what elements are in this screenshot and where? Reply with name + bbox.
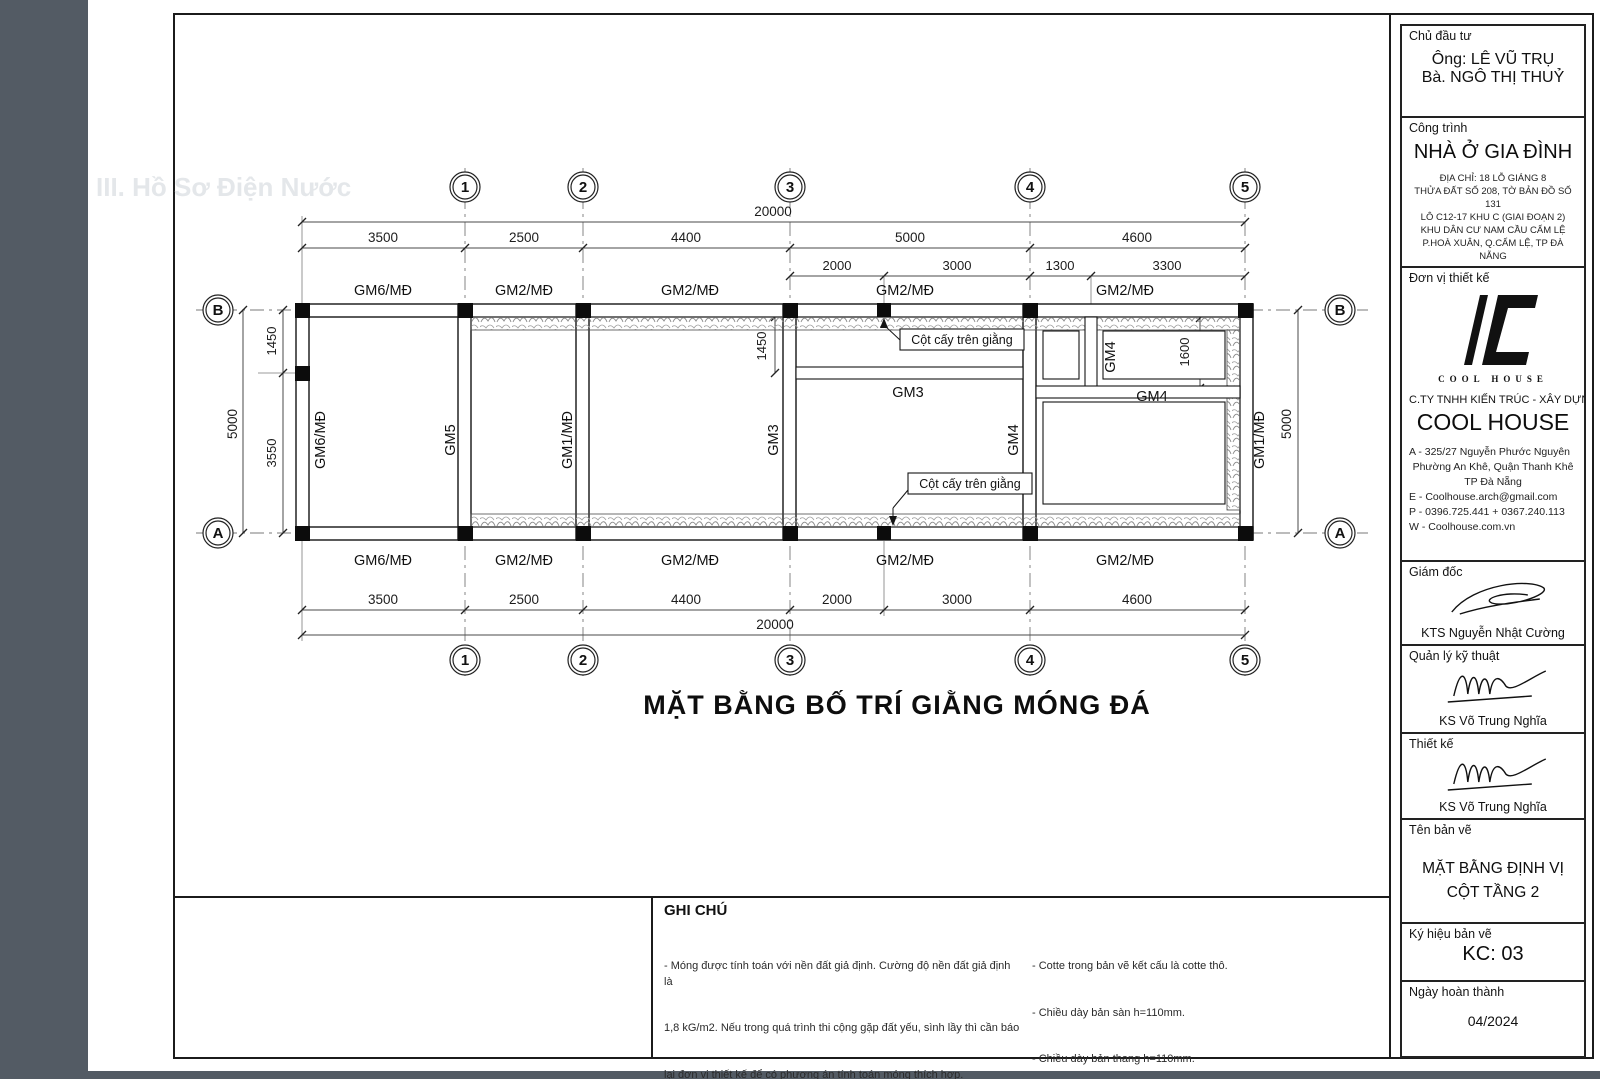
tech-manager-label: Quản lý kỹ thuật (1409, 649, 1577, 663)
dim-label: 5000 (895, 230, 925, 245)
dim-label: 4600 (1122, 230, 1152, 245)
titleblock-divider (1389, 13, 1391, 1059)
grid-bubble-label: 2 (579, 652, 587, 669)
company-line: W - Coolhouse.com.vn (1409, 520, 1577, 535)
notes-title: GHI CHÚ (664, 902, 727, 919)
beam-label: GM4 (1103, 341, 1119, 372)
beam-label: GM2/MĐ (876, 553, 934, 569)
grid-bubble-label: 5 (1241, 179, 1249, 196)
plan-title: MẶT BẰNG BỐ TRÍ GIẰNG MÓNG ĐÁ (643, 688, 1150, 720)
company-line: P - 0396.725.441 + 0367.240.113 (1409, 505, 1577, 520)
callout-label: Cột cấy trên giằng (919, 476, 1020, 491)
dim-label: 2000 (823, 258, 852, 273)
tech-manager-section: Quản lý kỹ thuật KS Võ Trung Nghĩa (1402, 646, 1584, 734)
dim-label: 3500 (368, 230, 398, 245)
beam-label: GM5 (443, 424, 459, 455)
tech-manager-signature (1438, 662, 1558, 708)
company-line: Phường An Khê, Quận Thanh Khê (1409, 460, 1577, 475)
dim-label: 1450 (264, 327, 279, 356)
owner-name-2: Bà. NGÔ THỊ THUỶ (1409, 69, 1577, 87)
note-line: 1,8 kG/m2. Nếu trong quá trình thi cộng … (664, 1021, 1020, 1037)
project-address-line: ĐỊA CHỈ: 18 LỖ GIÁNG 8 (1409, 172, 1577, 185)
note-line: - Chiều dày bản thang h=110mm. (1032, 1052, 1384, 1068)
notes-left-column: - Móng được tính toán với nền đất giả đị… (664, 928, 1020, 1079)
dim-label: 1600 (1177, 338, 1192, 367)
dim-label: 1300 (1046, 258, 1075, 273)
grid-bubble-label: B (1335, 302, 1346, 319)
grid-bubble-label: 1 (461, 652, 469, 669)
dim-label: 2000 (822, 592, 852, 607)
viewer-left-bar (0, 0, 88, 1079)
grid-bubble-label: 2 (579, 179, 587, 196)
company-logo: COOL HOUSE (1409, 287, 1577, 384)
company-line: A - 325/27 Nguyễn Phước Nguyên (1409, 445, 1577, 460)
director-section: Giám đốc KTS Nguyễn Nhật Cường (1402, 562, 1584, 646)
title-block: Chủ đầu tư Ông: LÊ VŨ TRỤ Bà. NGÔ THỊ TH… (1400, 24, 1586, 1058)
drawing-name-label: Tên bản vẽ (1409, 823, 1577, 837)
owner-name-1: Ông: LÊ VŨ TRỤ (1409, 51, 1577, 69)
company-type: C.TY TNHH KIẾN TRÚC - XÂY DỰNG (1409, 394, 1577, 406)
beam-label: GM3 (892, 385, 923, 401)
dim-label: 5000 (1279, 409, 1294, 439)
drawing-sheet: III. Hồ Sơ Điện Nước (0, 0, 1600, 1079)
beam-label: GM4 (1006, 424, 1022, 455)
cool-house-logo-icon (1434, 287, 1552, 373)
designer-name: KS Võ Trung Nghĩa (1402, 800, 1584, 814)
dim-label: 5000 (225, 409, 240, 439)
dim-label: 2500 (509, 592, 539, 607)
grid-bubble-label: 3 (786, 652, 794, 669)
dim-label: 4400 (671, 230, 701, 245)
dim-label: 2500 (509, 230, 539, 245)
beam-label: GM2/MĐ (1096, 553, 1154, 569)
grid-bubble-label: 4 (1026, 652, 1035, 669)
dim-label: 3500 (368, 592, 398, 607)
notes-left-border (651, 896, 653, 1059)
owner-label: Chủ đầu tư (1409, 29, 1577, 43)
drawing-name-line: CỘT TẦNG 2 (1409, 881, 1577, 905)
project-name: NHÀ Ở GIA ĐÌNH (1409, 141, 1577, 164)
director-label: Giám đốc (1409, 565, 1577, 579)
drawing-code-label: Ký hiệu bản vẽ (1409, 927, 1577, 941)
beam-label: GM1/MĐ (1252, 411, 1268, 469)
drawing-code-section: Ký hiệu bản vẽ KC: 03 (1402, 924, 1584, 982)
project-address-line: P.HOÀ XUÂN, Q.CẨM LỆ, TP ĐÀ NẴNG (1409, 237, 1577, 263)
tech-manager-name: KS Võ Trung Nghĩa (1402, 714, 1584, 728)
director-name: KTS Nguyễn Nhật Cường (1402, 626, 1584, 640)
dim-label: 4400 (671, 592, 701, 607)
dim-label: 3300 (1153, 258, 1182, 273)
dim-label: 4600 (1122, 592, 1152, 607)
director-signature (1438, 578, 1558, 622)
beam-label: GM6/MĐ (313, 411, 329, 469)
designer-label: Đơn vị thiết kế (1409, 271, 1577, 285)
company-line: E - Coolhouse.arch@gmail.com (1409, 490, 1577, 505)
dim-label: 3550 (264, 439, 279, 468)
grid-bubble-label: B (213, 302, 224, 319)
beam-label: GM6/MĐ (354, 283, 412, 299)
designer-section: Đơn vị thiết kế COOL HOUSE C.TY TNHH KIẾ… (1402, 268, 1584, 562)
dim-label: 3000 (943, 258, 972, 273)
foundation-plan: Cột cấy trên giằng Cột cấy trên giằng 1 … (173, 13, 1389, 896)
owner-section: Chủ đầu tư Ông: LÊ VŨ TRỤ Bà. NGÔ THỊ TH… (1402, 26, 1584, 118)
notes-right-column: - Cotte trong bản vẽ kết cấu là cotte th… (1032, 928, 1384, 1079)
callout-label: Cột cấy trên giằng (911, 332, 1012, 347)
dim-overall-bottom: 20000 (756, 617, 794, 632)
company-name: COOL HOUSE (1409, 409, 1577, 436)
design-section: Thiết kế KS Võ Trung Nghĩa (1402, 734, 1584, 820)
grid-bubble-label: 4 (1026, 179, 1035, 196)
date-label: Ngày hoàn thành (1409, 985, 1577, 999)
note-line: lại đơn vị thiết kế để có phương án tính… (664, 1068, 1020, 1079)
dim-label: 1450 (754, 332, 769, 361)
date-section: Ngày hoàn thành 04/2024 (1402, 982, 1584, 1056)
beam-label: GM2/MĐ (1096, 283, 1154, 299)
extension-lines (258, 216, 1091, 641)
project-section: Công trình NHÀ Ở GIA ĐÌNH ĐỊA CHỈ: 18 LỖ… (1402, 118, 1584, 268)
note-line: - Cotte trong bản vẽ kết cấu là cotte th… (1032, 959, 1384, 975)
project-address-line: THỬA ĐẤT SỐ 208, TỜ BẢN ĐỒ SỐ 131 (1409, 185, 1577, 211)
drawing-code-value: KC: 03 (1409, 943, 1577, 966)
project-label: Công trình (1409, 121, 1577, 135)
logo-text: COOL HOUSE (1409, 374, 1577, 384)
beam-label: GM3 (766, 424, 782, 455)
beam-label: GM2/MĐ (661, 283, 719, 299)
notes-top-border (173, 896, 1391, 898)
project-address-line: LÔ C12-17 KHU C (GIAI ĐOẠN 2) (1409, 211, 1577, 224)
grid-bubble-label: A (213, 525, 224, 542)
dim-label: 3000 (942, 592, 972, 607)
beam-label: GM2/MĐ (495, 283, 553, 299)
grid-bubble-label: 1 (461, 179, 469, 196)
beam-label: GM1/MĐ (560, 411, 576, 469)
company-line: TP Đà Nẵng (1409, 475, 1577, 490)
beam-label: GM2/MĐ (495, 553, 553, 569)
designer-signature (1438, 750, 1558, 796)
beam-label: GM4 (1136, 389, 1167, 405)
drawing-name-section: Tên bản vẽ MẶT BẰNG ĐỊNH VỊ CỘT TẦNG 2 (1402, 820, 1584, 924)
beam-label: GM2/MĐ (876, 283, 934, 299)
note-line: - Chiều dày bản sàn h=110mm. (1032, 1006, 1384, 1022)
beam-label: GM2/MĐ (661, 553, 719, 569)
note-line: - Móng được tính toán với nền đất giả đị… (664, 959, 1020, 990)
design-label: Thiết kế (1409, 737, 1577, 751)
beam-label: GM6/MĐ (354, 553, 412, 569)
grid-bubble-label: 5 (1241, 652, 1249, 669)
date-value: 04/2024 (1409, 1013, 1577, 1029)
grid-bubble-label: 3 (786, 179, 794, 196)
project-address-line: KHU DÂN CƯ NAM CẦU CẨM LỆ (1409, 224, 1577, 237)
drawing-name-line: MẶT BẰNG ĐỊNH VỊ (1409, 857, 1577, 881)
dim-overall-top: 20000 (754, 204, 792, 219)
grid-bubble-label: A (1335, 525, 1346, 542)
